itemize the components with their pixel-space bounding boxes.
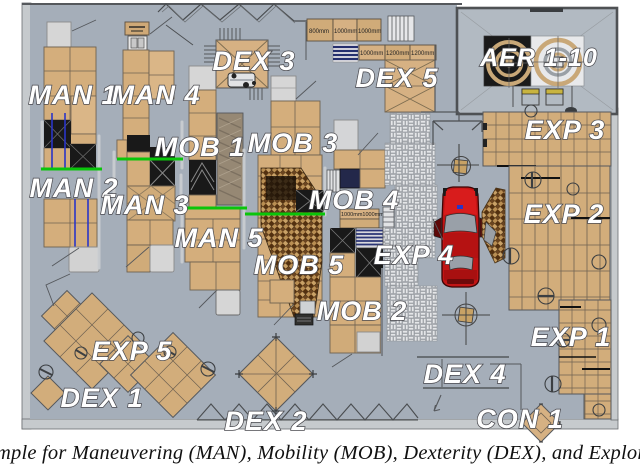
svg-text:AER 1-10: AER 1-10 xyxy=(479,44,598,72)
svg-text:EXP 2: EXP 2 xyxy=(524,199,605,229)
svg-text:1000mm: 1000mm xyxy=(360,51,383,57)
svg-text:MAN 1: MAN 1 xyxy=(28,80,117,110)
svg-text:DEX 2: DEX 2 xyxy=(224,406,307,436)
svg-text:MAN 5: MAN 5 xyxy=(174,223,263,253)
svg-text:1000mm: 1000mm xyxy=(334,29,357,35)
svg-text:EXP 3: EXP 3 xyxy=(525,115,606,145)
svg-text:EXP 5: EXP 5 xyxy=(92,336,173,366)
svg-text:MOB 3: MOB 3 xyxy=(248,128,339,158)
svg-text:1000mm: 1000mm xyxy=(358,29,381,35)
svg-text:EXP 1: EXP 1 xyxy=(531,322,612,352)
svg-text:DEX 5: DEX 5 xyxy=(355,63,438,93)
svg-text:1200mm: 1200mm xyxy=(386,51,409,57)
svg-text:MAN 4: MAN 4 xyxy=(111,80,200,110)
svg-text:800mm: 800mm xyxy=(309,29,329,35)
svg-text:EXP 4: EXP 4 xyxy=(374,240,455,270)
svg-text:MOB 4: MOB 4 xyxy=(309,185,400,215)
svg-text:MOB 2: MOB 2 xyxy=(317,296,408,326)
svg-text:1200mm: 1200mm xyxy=(411,51,434,57)
svg-text:MOB 5: MOB 5 xyxy=(254,250,345,280)
svg-text:DEX 1: DEX 1 xyxy=(60,383,143,413)
svg-text:MAN 3: MAN 3 xyxy=(100,190,189,220)
svg-text:MOB 1: MOB 1 xyxy=(155,132,246,162)
svg-text:DEX 4: DEX 4 xyxy=(423,359,506,389)
svg-text:CON 1: CON 1 xyxy=(476,404,564,434)
svg-text:DEX 3: DEX 3 xyxy=(212,46,295,76)
svg-text:mple for Maneuvering (MAN), Mo: mple for Maneuvering (MAN), Mobility (MO… xyxy=(0,442,640,464)
